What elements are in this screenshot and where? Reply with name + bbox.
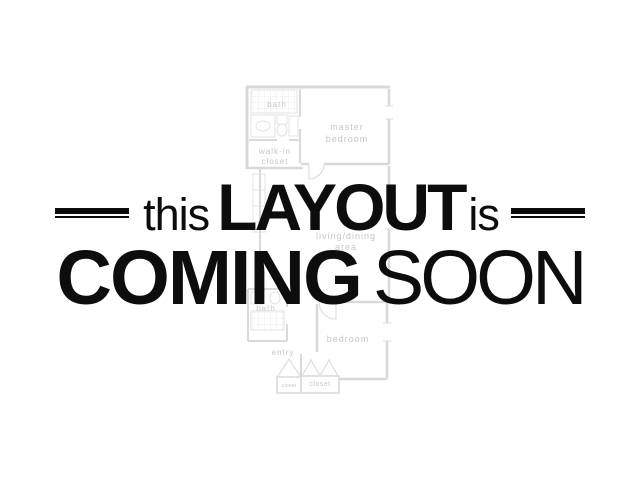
banner-line2: COMINGSOON — [0, 240, 640, 317]
double-rule-left-icon — [55, 208, 129, 218]
label-walk-in-closet-line2: closet — [262, 157, 289, 166]
banner-word-coming: COMING — [56, 235, 361, 321]
label-master-bedroom-line1: master — [330, 122, 364, 132]
banner-word-soon: SOON — [373, 235, 584, 321]
label-closet-left: closet — [282, 383, 297, 389]
label-bedroom: bedroom — [327, 334, 370, 344]
coming-soon-placeholder: bath master bedroom walk-in closet livin… — [0, 0, 640, 480]
banner-word-is: is — [468, 189, 499, 240]
label-closet-right: closet — [309, 381, 330, 388]
label-master-bedroom-line2: bedroom — [326, 134, 369, 144]
banner-word-layout: LAYOUT — [217, 170, 464, 244]
label-bath-upper: bath — [267, 100, 287, 109]
double-rule-right-icon — [511, 208, 585, 218]
label-entry: entry — [272, 348, 295, 357]
label-walk-in-closet-line1: walk-in — [258, 147, 291, 156]
banner-word-this: this — [143, 189, 209, 240]
banner-line1: thisLAYOUTis — [0, 174, 640, 240]
